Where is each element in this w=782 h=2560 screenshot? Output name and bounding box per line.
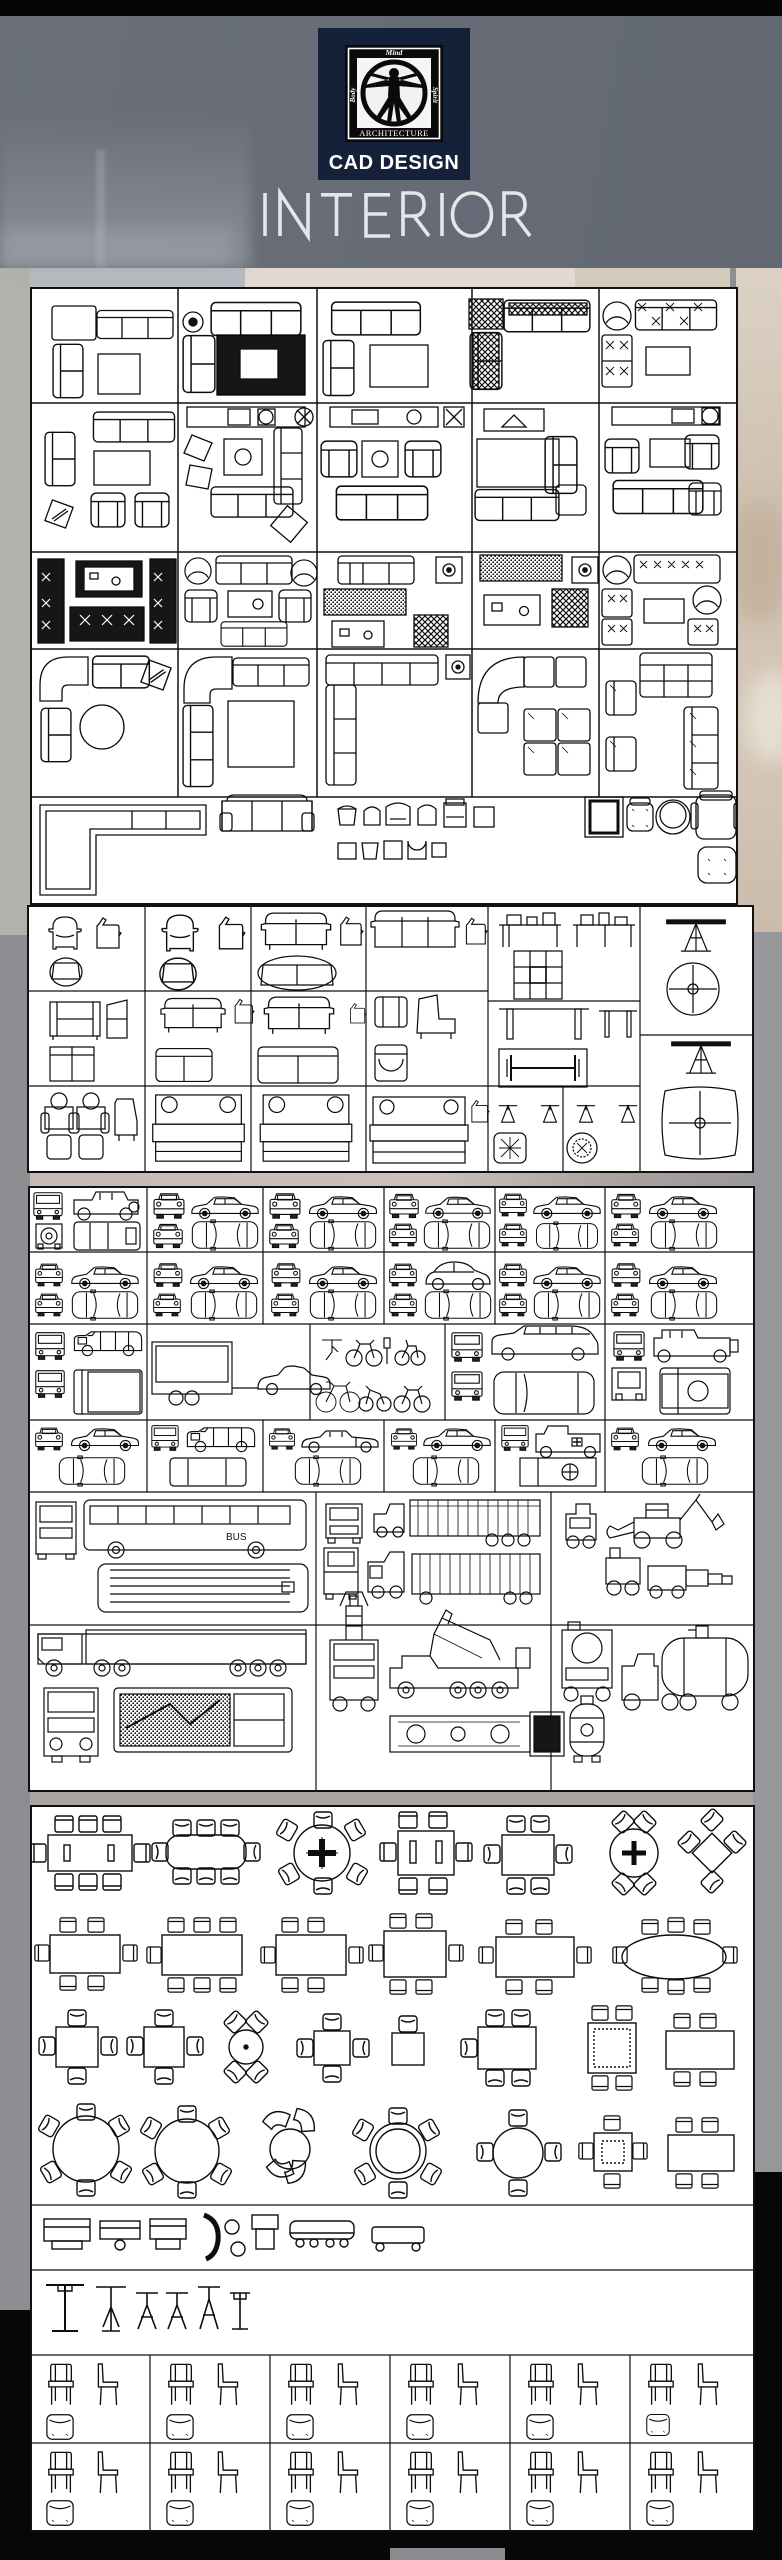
svg-text:BUS: BUS <box>226 1532 247 1543</box>
